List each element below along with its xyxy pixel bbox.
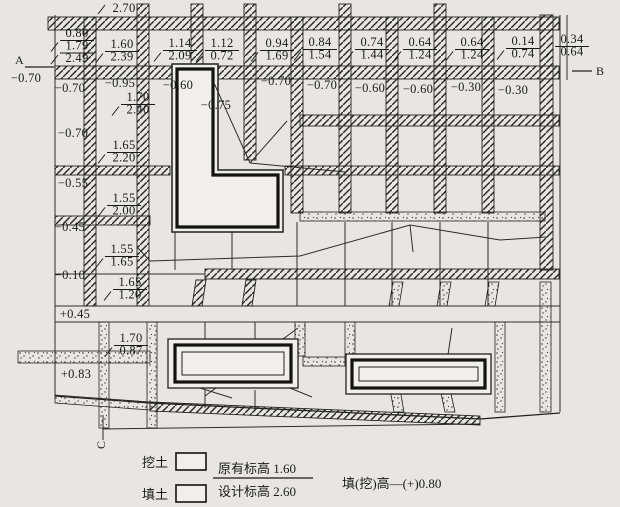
elevation-label: 2.09 bbox=[168, 49, 191, 63]
legend-fill-label: 填土 bbox=[142, 487, 168, 502]
elevation-label: −0.55 bbox=[58, 176, 88, 190]
marker-b: B bbox=[596, 64, 604, 78]
building-2 bbox=[168, 339, 298, 388]
elevation-label: −0.45 bbox=[55, 220, 85, 234]
elevation-label: −0.75 bbox=[201, 98, 231, 112]
marker-c: C bbox=[94, 441, 108, 449]
elevation-label: −0.70 bbox=[55, 81, 85, 95]
elevation-label: 2.20 bbox=[112, 151, 135, 165]
grid-method-earthwork-plan: A B C 0.801.792.491.602.391.142.091.120.… bbox=[0, 0, 620, 507]
elevation-label: 1.65 bbox=[110, 255, 133, 269]
elevation-label: 2.40 bbox=[126, 103, 149, 117]
elevation-label: 2.49 bbox=[65, 51, 88, 65]
elevation-label: 0.64 bbox=[560, 45, 584, 59]
elevation-label: 1.20 bbox=[118, 288, 141, 302]
leader-tick bbox=[104, 292, 111, 301]
elevation-label: −0.60 bbox=[355, 81, 385, 95]
elevation-label: −0.60 bbox=[403, 82, 433, 96]
leader-tick bbox=[98, 208, 105, 217]
legend-cut-swatch bbox=[176, 453, 206, 470]
legend-formula: 填(挖)高—(+)0.80 bbox=[342, 476, 441, 491]
leader-tick bbox=[96, 259, 103, 268]
leader-lines bbox=[214, 83, 345, 172]
elevation-label: +0.45 bbox=[60, 307, 90, 321]
site-plan-drawing: A B C 0.801.792.491.602.391.142.091.120.… bbox=[0, 0, 620, 507]
legend: 挖土 填土 原有标高 1.60 设计标高 2.60 填(挖)高—(+)0.80 bbox=[142, 453, 441, 502]
elevation-label: −0.10 bbox=[55, 268, 85, 282]
elevation-label: 2.70 bbox=[112, 1, 135, 15]
elevation-label: −0.70 bbox=[261, 74, 291, 88]
legend-design-elevation: 设计标高 2.60 bbox=[218, 484, 296, 499]
elevation-label: 1.54 bbox=[308, 48, 332, 62]
elevation-label: 0.74 bbox=[511, 47, 535, 61]
elevation-label: 1.69 bbox=[265, 49, 288, 63]
leader-tick bbox=[154, 53, 161, 62]
elevation-label: 1.24 bbox=[460, 48, 484, 62]
elevation-label: 1.24 bbox=[408, 48, 432, 62]
leader-tick bbox=[98, 155, 105, 164]
elevation-label: −0.70 bbox=[307, 78, 337, 92]
legend-fill-swatch bbox=[176, 485, 206, 502]
leader-tick bbox=[446, 52, 453, 61]
elevation-label: −0.30 bbox=[451, 80, 481, 94]
elevation-label: 1.44 bbox=[360, 48, 384, 62]
legend-original-elevation: 原有标高 1.60 bbox=[218, 461, 296, 476]
building-3 bbox=[346, 354, 491, 394]
stippled-strips bbox=[18, 212, 551, 428]
elevation-label: −0.95 bbox=[105, 76, 135, 90]
elevation-label: +0.83 bbox=[61, 367, 91, 381]
elevation-label: 2.39 bbox=[110, 50, 133, 64]
elevation-label: −0.70 bbox=[58, 126, 88, 140]
elevation-label: 0.87 bbox=[119, 344, 142, 358]
legend-cut-label: 挖土 bbox=[142, 455, 168, 470]
elevation-label: 2.00 bbox=[112, 204, 135, 218]
leader-tick bbox=[112, 107, 119, 116]
marker-a: A bbox=[15, 53, 24, 67]
elevation-label: −0.30 bbox=[498, 83, 528, 97]
elevation-label: 0.72 bbox=[210, 49, 233, 63]
leader-tick bbox=[98, 5, 105, 14]
leader-tick bbox=[96, 54, 103, 63]
elevation-label: −0.60 bbox=[163, 78, 193, 92]
leader-tick bbox=[497, 51, 504, 60]
elevation-label: −0.70 bbox=[11, 71, 41, 85]
